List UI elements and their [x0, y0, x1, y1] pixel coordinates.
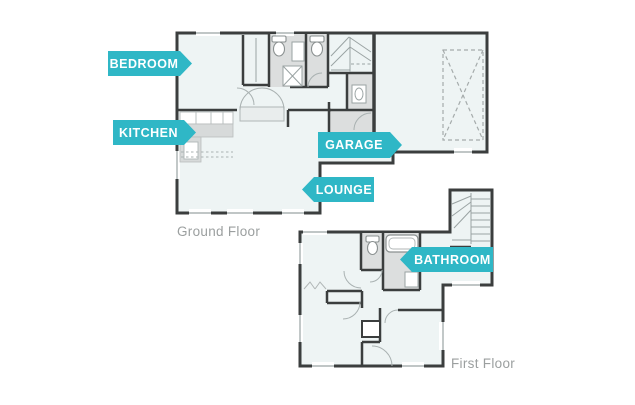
- label-garage-text: GARAGE: [325, 138, 383, 152]
- floorplan-image: BEDROOM KITCHEN GARAGE LOUNGE BATHROOM G…: [0, 0, 635, 405]
- label-kitchen-text: KITCHEN: [119, 126, 178, 140]
- caption-ground-floor: Ground Floor: [177, 224, 260, 239]
- toilet-icon: [310, 36, 324, 56]
- caption-first-floor: First Floor: [451, 356, 515, 371]
- floorplan-drawing: [0, 0, 635, 405]
- vanity-icon: [292, 42, 304, 61]
- first-floor-plan: [296, 190, 492, 369]
- sink-icon: [405, 272, 418, 287]
- label-lounge: LOUNGE: [302, 177, 374, 202]
- kitchen-peninsula: [240, 107, 284, 121]
- label-kitchen: KITCHEN: [113, 120, 196, 145]
- label-bedroom: BEDROOM: [108, 51, 192, 76]
- label-garage: GARAGE: [318, 132, 402, 158]
- toilet-icon: [272, 36, 286, 56]
- toilet-icon: [366, 236, 379, 255]
- sink-icon: [352, 85, 366, 103]
- ground-entry-floor: [330, 111, 372, 134]
- shower-icon: [283, 66, 302, 86]
- label-bathroom-text: BATHROOM: [414, 253, 491, 267]
- label-lounge-text: LOUNGE: [316, 183, 372, 197]
- label-bedroom-text: BEDROOM: [110, 57, 179, 71]
- label-bathroom: BATHROOM: [400, 247, 493, 272]
